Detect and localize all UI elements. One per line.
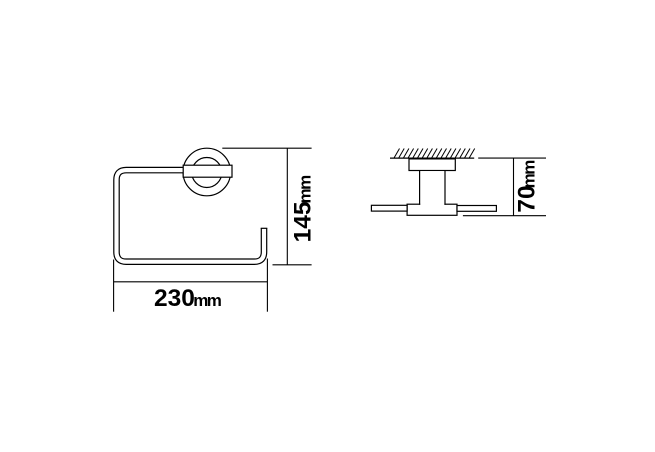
svg-text:70mm: 70mm [513, 160, 540, 213]
svg-text:230mm: 230mm [154, 285, 222, 312]
svg-text:145mm: 145mm [289, 175, 316, 243]
